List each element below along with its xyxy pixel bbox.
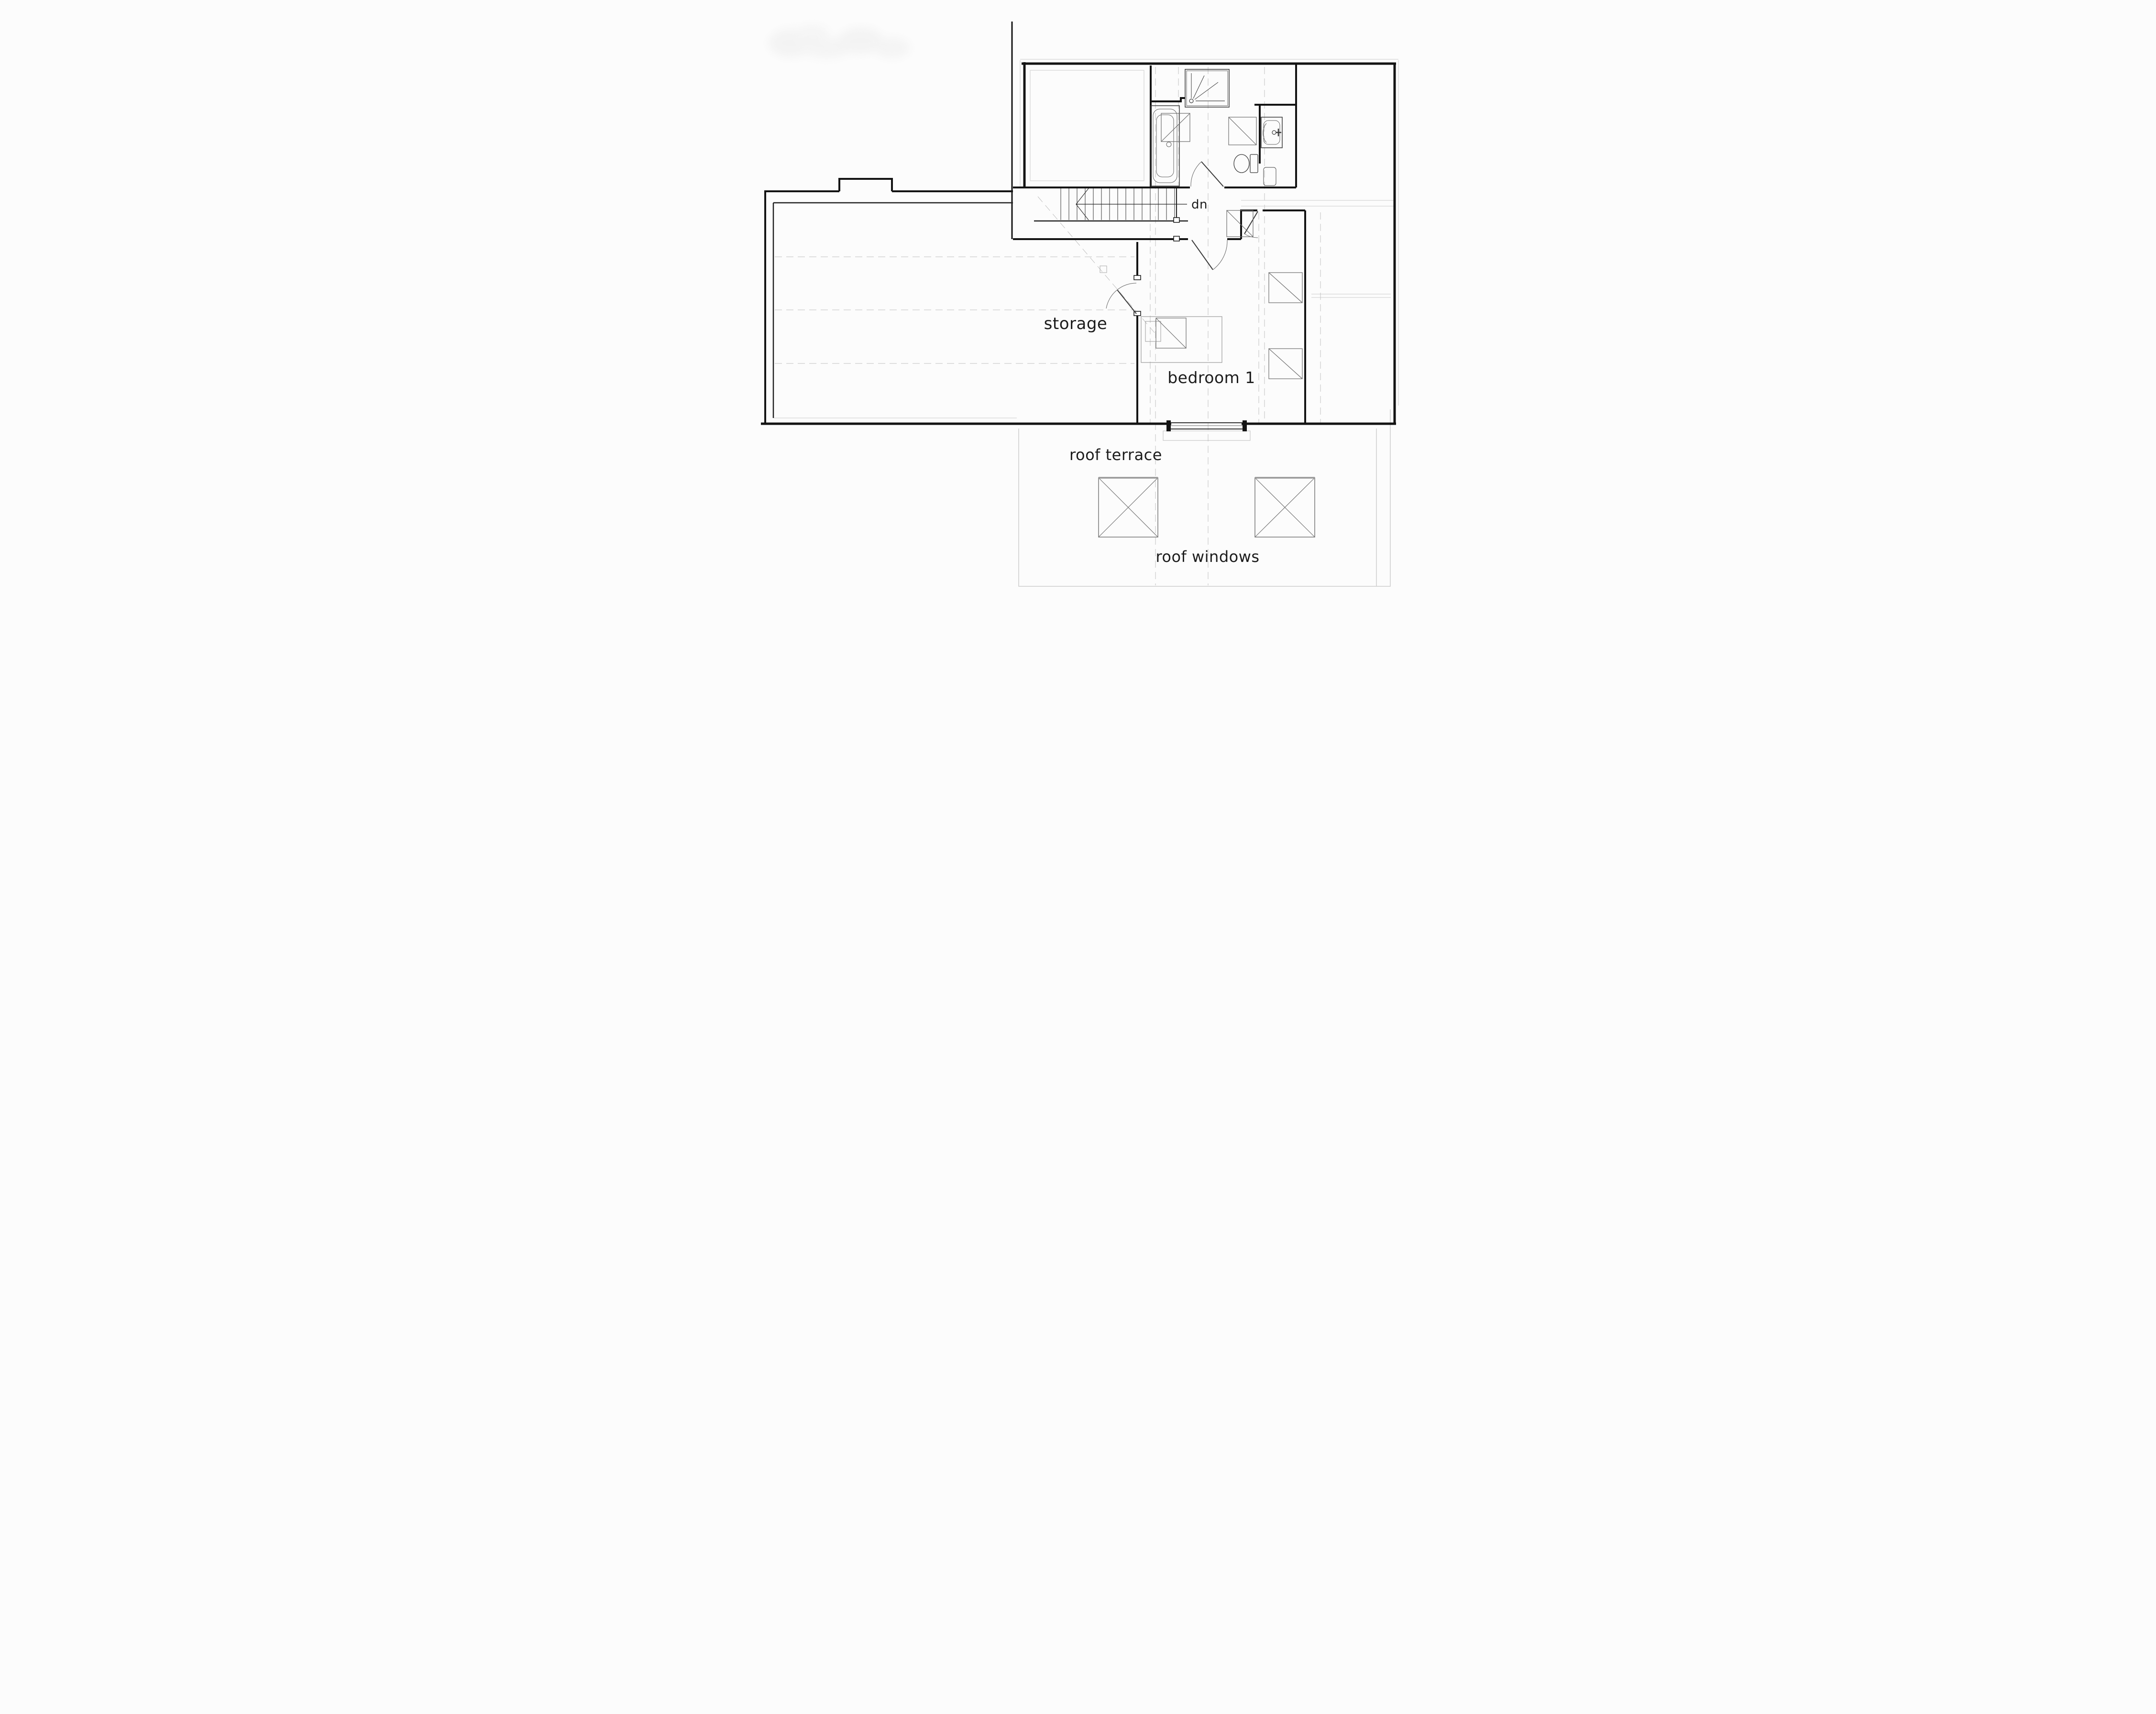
doors — [1106, 162, 1258, 314]
terrace-roof-window-left — [1099, 478, 1158, 537]
bed — [1141, 317, 1222, 363]
shower-tray — [1185, 69, 1229, 107]
roof-window-bedroom-east-2 — [1269, 349, 1302, 379]
roof-window-bathroom — [1229, 117, 1256, 145]
duct-post — [1100, 266, 1107, 273]
bedroom-label: bedroom 1 — [1167, 368, 1255, 387]
staircase-down: dn — [1034, 188, 1208, 241]
bedroom-terrace-window — [1163, 420, 1250, 440]
roof-window-bedroom-east-1 — [1269, 273, 1302, 303]
toilet — [1234, 154, 1276, 186]
floor-plan-page: dn — [703, 0, 1453, 596]
shelf-unit — [1264, 167, 1276, 186]
bath-tub — [1151, 106, 1179, 186]
storage-label: storage — [1044, 314, 1108, 333]
window-post — [1166, 420, 1171, 431]
hall-cupboard-door — [1244, 211, 1258, 238]
toilet-cistern — [1250, 154, 1258, 173]
newel-post — [1174, 236, 1179, 241]
roof-window-over-bath — [1161, 113, 1190, 142]
door-jamb-post — [1134, 275, 1141, 280]
stairs-dn-label: dn — [1191, 198, 1208, 212]
storage-door — [1106, 283, 1136, 314]
roof-window-over-bed — [1156, 318, 1186, 348]
bathroom-door — [1191, 162, 1223, 187]
shower-drain — [1189, 99, 1193, 103]
roof-window-symbols — [1156, 113, 1302, 379]
roof-terrace-label: roof terrace — [1069, 446, 1162, 464]
newel-post — [1174, 218, 1179, 222]
window-post — [1243, 420, 1247, 431]
basin-tap — [1276, 129, 1281, 136]
erased-watermark-smudge — [769, 25, 910, 58]
floor-plan: dn — [703, 0, 1453, 596]
exterior-walls — [761, 22, 1396, 425]
roof-window-landing — [1227, 210, 1253, 237]
window-sill — [1163, 431, 1250, 440]
wash-basin — [1261, 117, 1282, 148]
roof-windows-label: roof windows — [1155, 548, 1259, 566]
pillow — [1145, 321, 1161, 341]
basin-drain — [1272, 131, 1276, 134]
terrace-roof-window-right — [1255, 478, 1315, 537]
bath-overflow — [1166, 142, 1171, 147]
bedroom-door — [1192, 240, 1227, 270]
